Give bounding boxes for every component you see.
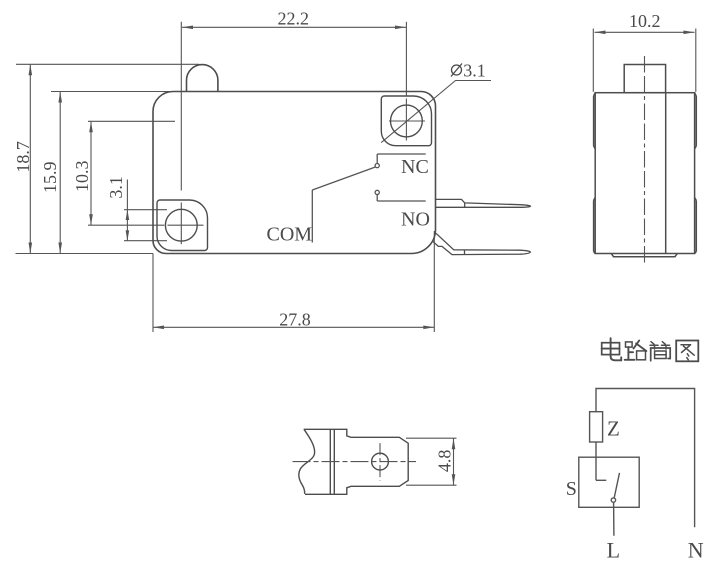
svg-text:NC: NC bbox=[401, 156, 429, 178]
svg-text:27.8: 27.8 bbox=[279, 310, 311, 330]
svg-text:N: N bbox=[688, 537, 704, 562]
svg-text:3.1: 3.1 bbox=[463, 61, 486, 81]
svg-text:COM: COM bbox=[267, 224, 313, 246]
svg-text:S: S bbox=[566, 478, 577, 500]
svg-text:4.8: 4.8 bbox=[434, 450, 454, 473]
svg-text:10.2: 10.2 bbox=[629, 11, 661, 31]
svg-text:L: L bbox=[607, 537, 620, 562]
svg-text:18.7: 18.7 bbox=[13, 141, 33, 173]
svg-text:15.9: 15.9 bbox=[40, 161, 60, 193]
svg-text:3.1: 3.1 bbox=[106, 176, 126, 199]
svg-text:10.3: 10.3 bbox=[72, 160, 92, 192]
svg-text:22.2: 22.2 bbox=[278, 8, 310, 28]
svg-text:NO: NO bbox=[401, 208, 430, 230]
svg-text:Z: Z bbox=[607, 416, 620, 440]
